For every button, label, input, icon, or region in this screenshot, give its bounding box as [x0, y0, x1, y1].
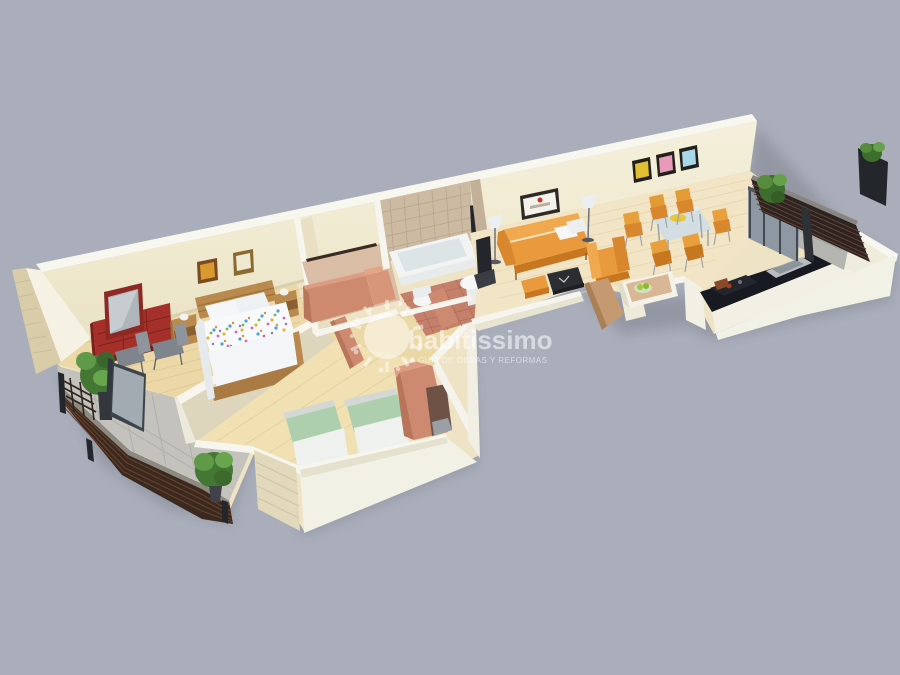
svg-text:habitissimo: habitissimo — [408, 325, 552, 355]
svg-text:LA GUÍA DE OBRAS Y REFORMAS: LA GUÍA DE OBRAS Y REFORMAS — [405, 356, 548, 365]
